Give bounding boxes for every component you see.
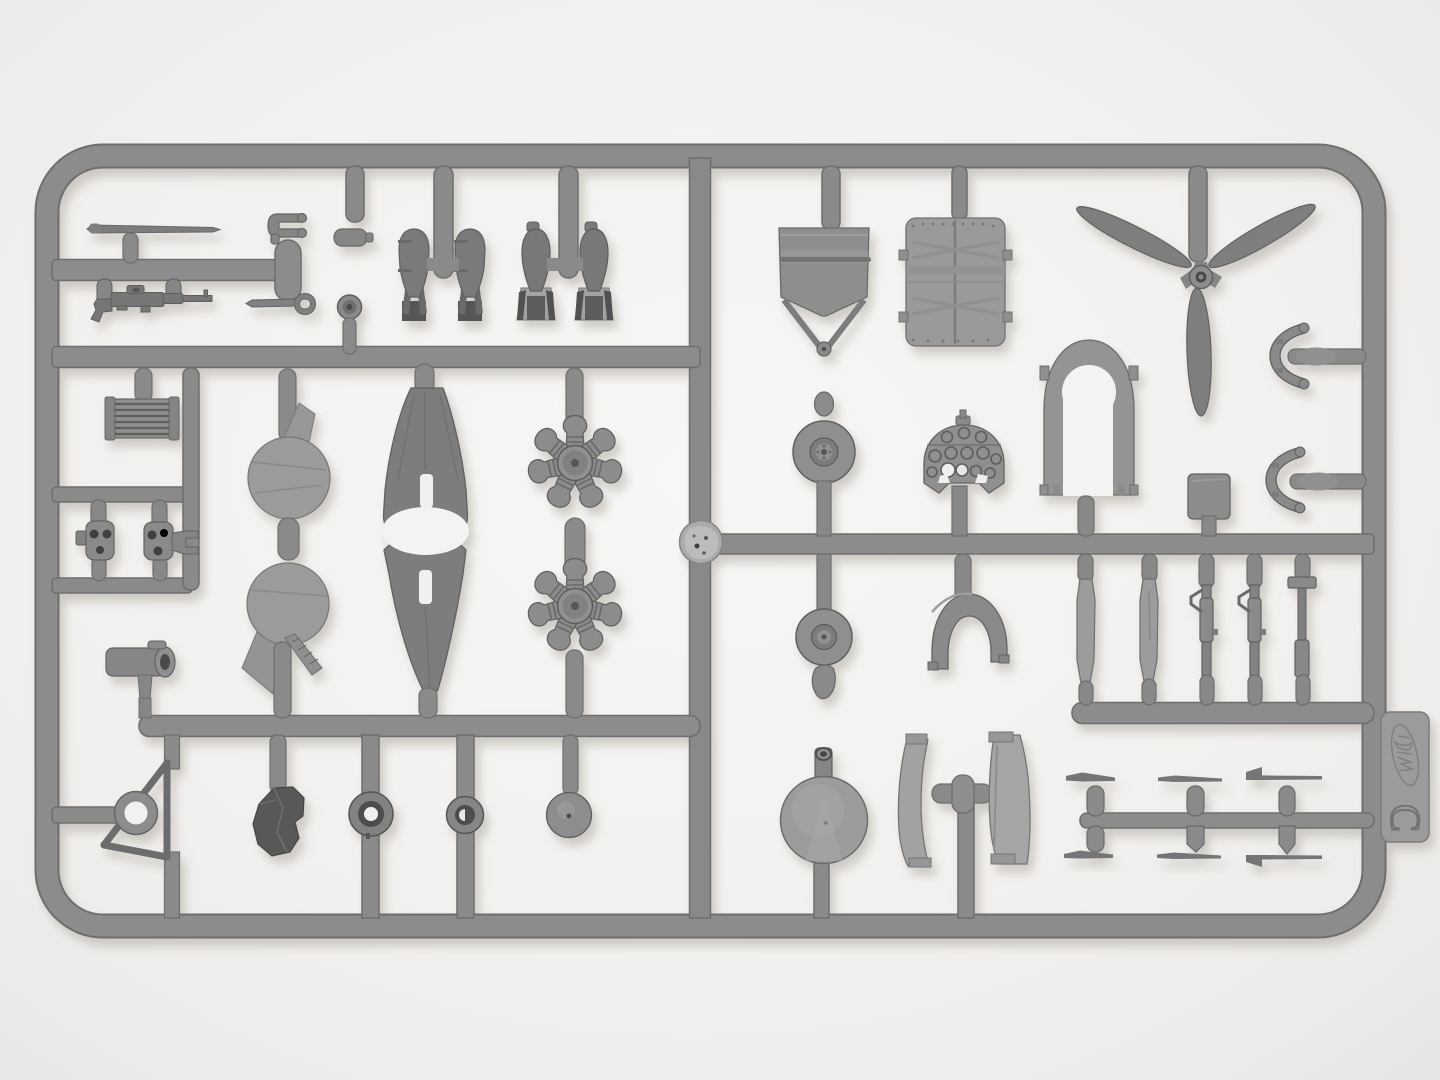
svg-text:C: C xyxy=(1381,804,1427,832)
